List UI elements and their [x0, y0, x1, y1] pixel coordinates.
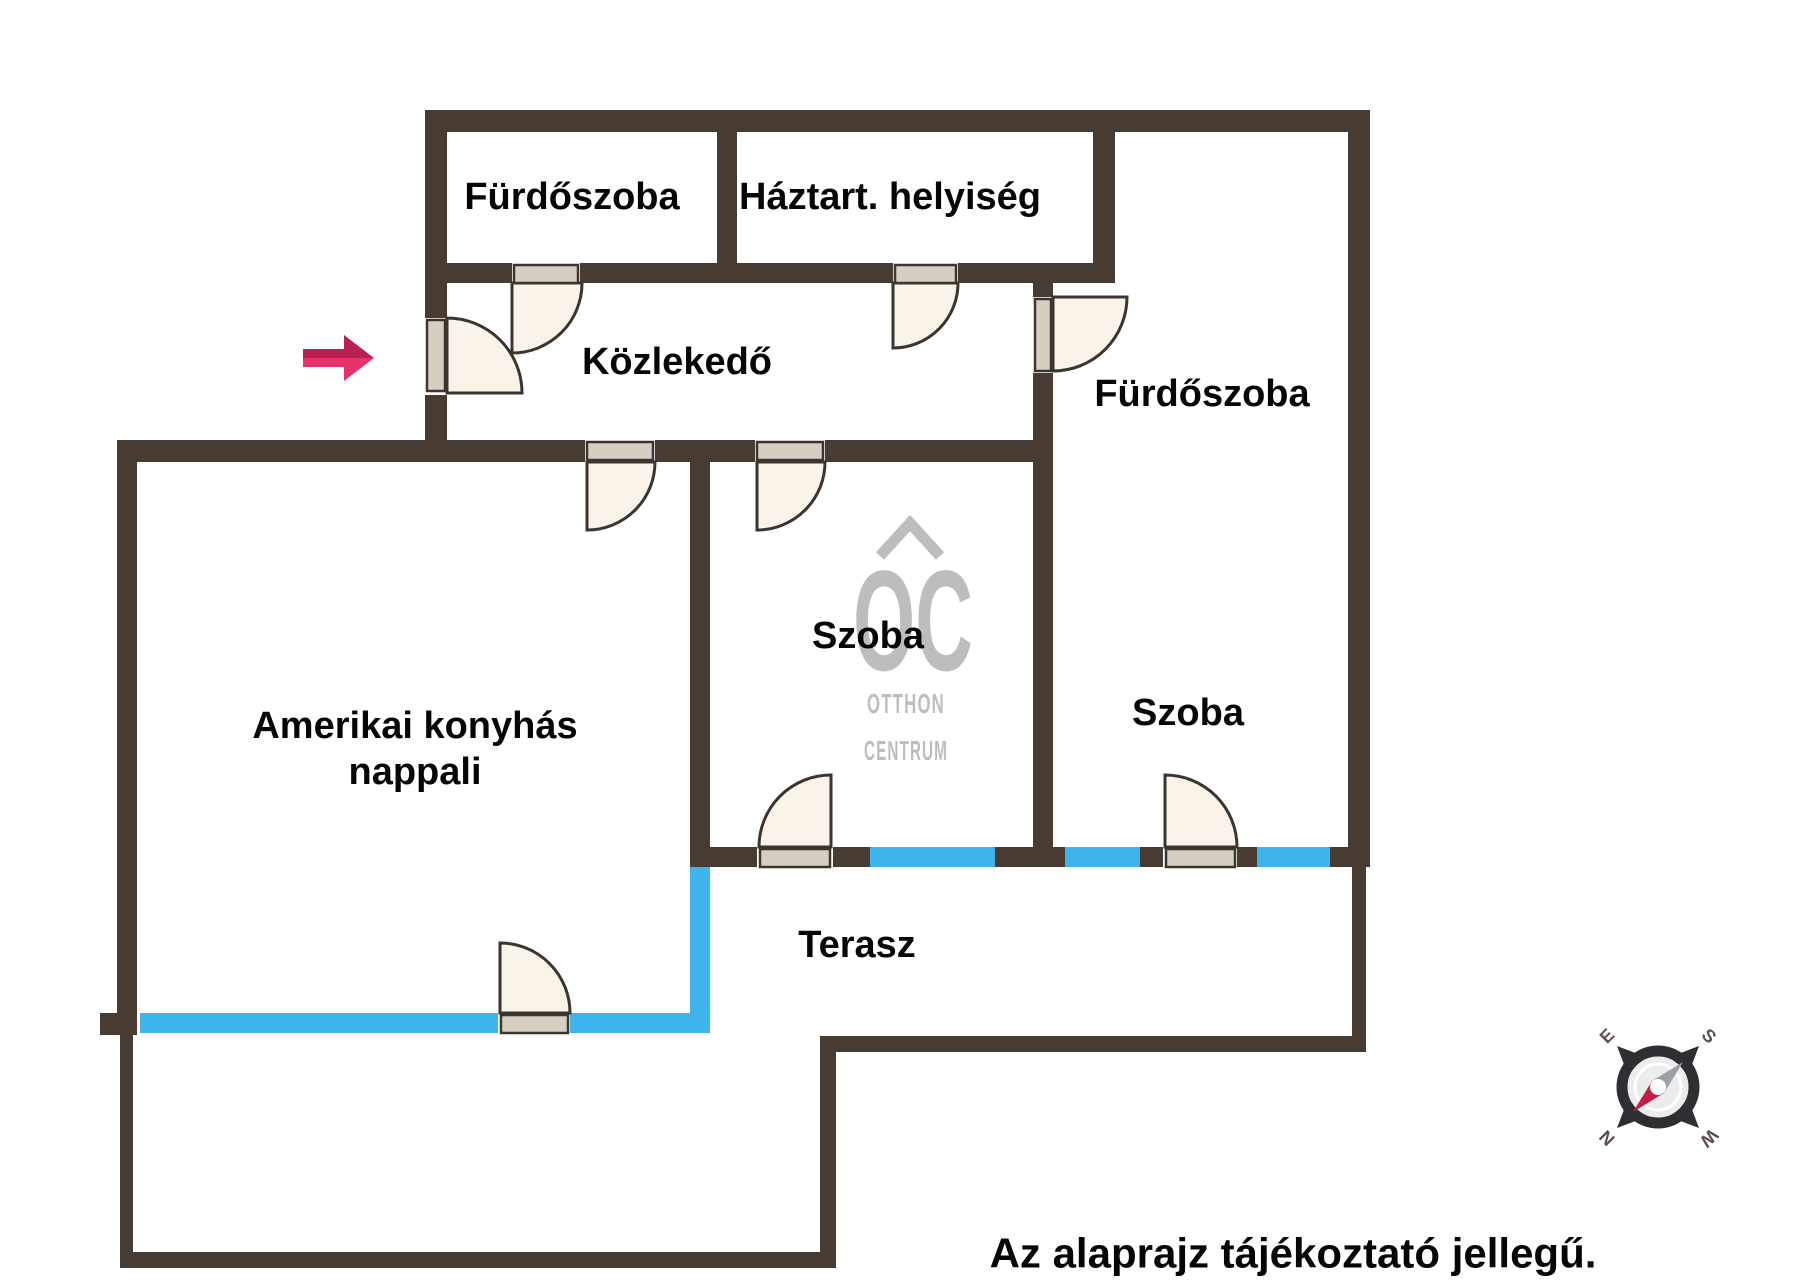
window-living-bottom-left: [140, 1013, 498, 1033]
door-arc-room-middle: [757, 462, 825, 530]
door-leaf-living-terrace: [501, 1015, 568, 1033]
door-leaf-entrance: [427, 320, 445, 391]
window-room-right-2: [1257, 847, 1330, 867]
wall-living-top-b: [655, 440, 755, 462]
wall-bathright-left-upper: [1033, 263, 1053, 297]
door-arc-living-room: [587, 462, 655, 530]
watermark-line2: CENTRUM: [864, 735, 948, 766]
wall-entry-stub-upper: [425, 283, 447, 318]
compass-letter-e: E: [1596, 1025, 1619, 1048]
entrance-arrow-top: [303, 335, 374, 358]
wall-living-right: [690, 462, 710, 867]
wall-terrace-top-f: [1330, 847, 1370, 867]
wall-terrace-top-d: [1140, 847, 1163, 867]
wall-top-outer: [425, 110, 1370, 132]
room-label-room-middle: Szoba: [812, 615, 925, 657]
floor-plan-drawing: OC OTTHON CENTRUM: [0, 0, 1820, 1280]
wall-left-upper: [425, 132, 447, 263]
door-leaf-bathroom-right: [1035, 299, 1051, 371]
compass-letter-w: W: [1696, 1125, 1722, 1151]
door-leaf-room-right-terrace: [1166, 849, 1235, 867]
room-label-living-line2: nappali: [348, 751, 481, 793]
room-label-hallway: Közlekedő: [582, 341, 772, 383]
door-arc-room-right-terrace: [1165, 775, 1237, 847]
door-arc-utility-room: [893, 283, 958, 348]
door-arc-living-terrace: [500, 943, 570, 1013]
window-living-bottom-right: [570, 1013, 710, 1033]
wall-terrace-top-c: [995, 847, 1065, 867]
compass-icon: E S W N: [1595, 1025, 1722, 1151]
door-arc-bathroom-top: [512, 283, 582, 353]
window-terrace-vertical: [690, 855, 710, 1033]
door-leaf-room-middle: [757, 442, 823, 460]
entrance-arrow-bottom: [303, 358, 374, 381]
compass-letter-s: S: [1698, 1025, 1721, 1048]
wall-right-outer: [1348, 110, 1370, 867]
wall-bath-utility-divider: [717, 132, 737, 263]
door-arc-room-middle-terrace: [759, 775, 831, 847]
wall-terrace-right-thin: [1352, 867, 1366, 1052]
compass-hub: [1650, 1079, 1666, 1095]
wall-roommiddle-top: [825, 440, 1050, 462]
window-room-right-1: [1065, 847, 1140, 867]
room-label-utility-room: Háztart. helyiség: [739, 176, 1041, 218]
floor-plan-page: OC OTTHON CENTRUM: [0, 0, 1820, 1280]
wall-terrace-bottom: [820, 1036, 1366, 1052]
room-label-bathroom-right: Fürdőszoba: [1094, 373, 1310, 415]
wall-terrace-top-b: [833, 847, 870, 867]
wall-hallway-top-a: [425, 263, 512, 283]
room-label-room-right: Szoba: [1132, 692, 1245, 734]
wall-bathright-left-lower: [1033, 373, 1053, 867]
disclaimer-text: Az alaprajz tájékoztató jellegű.: [990, 1230, 1597, 1277]
wall-terrace-top-e: [1237, 847, 1257, 867]
room-label-terrace: Terasz: [798, 924, 916, 966]
windows: [140, 847, 1330, 1033]
wall-utility-bathright-divider: [1093, 132, 1115, 283]
entrance-arrow-icon: [303, 335, 374, 381]
door-leaf-living-room: [587, 442, 653, 460]
walls: [100, 110, 1370, 1268]
window-room-middle: [870, 847, 995, 867]
compass-letter-n: N: [1595, 1126, 1618, 1149]
wall-living-left: [117, 440, 137, 1013]
room-label-bathroom-top: Fürdőszoba: [464, 176, 680, 218]
wall-lower-bottom: [120, 1252, 836, 1268]
door-leaf-bathroom-top: [514, 265, 578, 283]
wall-hallway-top-b: [580, 263, 893, 283]
wall-living-corner-block: [100, 1013, 137, 1035]
wall-terrace-top-a: [690, 847, 757, 867]
room-label-living-line1: Amerikai konyhás: [252, 705, 577, 747]
door-arc-bathroom-right: [1053, 297, 1127, 371]
wall-lower-right-thin: [820, 1036, 836, 1268]
wall-lower-left-thin: [120, 1035, 133, 1268]
door-leaf-utility-room: [895, 265, 956, 283]
door-leaf-room-middle-terrace: [760, 849, 830, 867]
watermark-line1: OTTHON: [867, 688, 945, 719]
wall-living-top-a: [117, 440, 585, 462]
